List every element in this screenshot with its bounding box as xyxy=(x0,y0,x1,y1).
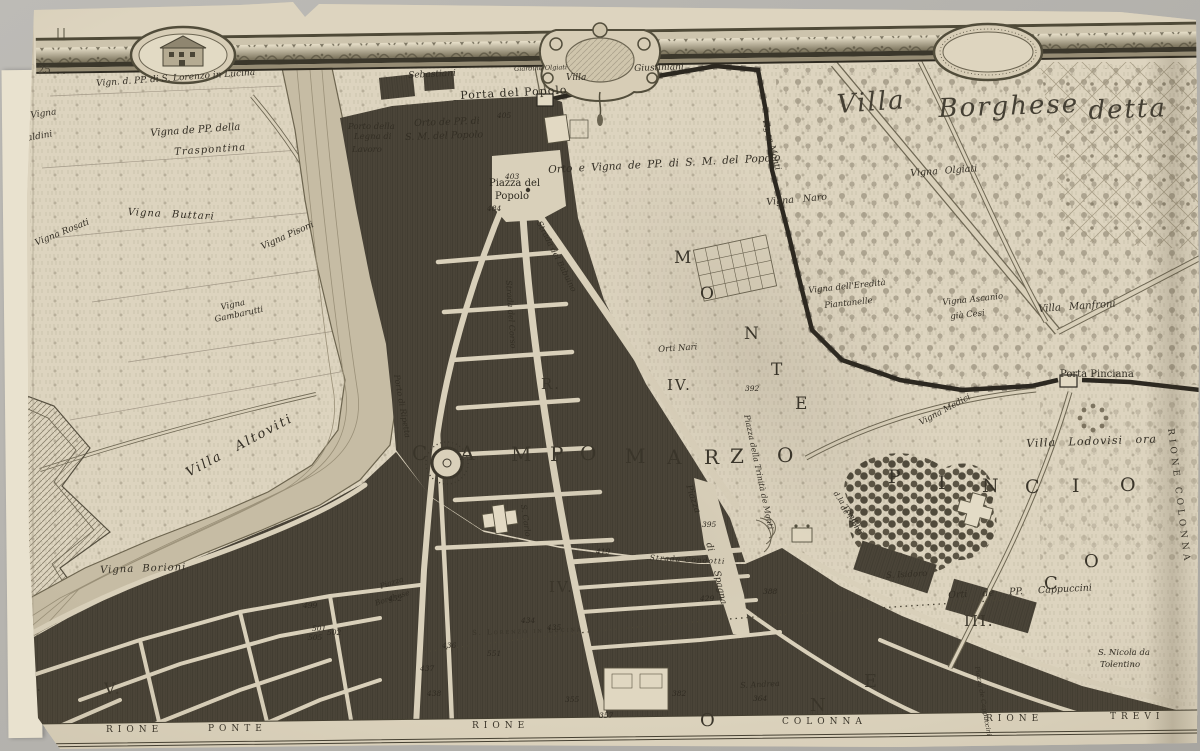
popolo-obelisk xyxy=(526,188,530,192)
porta-del-popolo-gate xyxy=(537,94,553,106)
right-edge-crease xyxy=(1145,55,1200,750)
scan-surface: 25 Vign. d. PP. di S. Lorenzo in LucinaV… xyxy=(0,0,1200,751)
cartouche-crescent xyxy=(934,24,1042,80)
piazza-del-popolo xyxy=(492,150,566,222)
sheet-number: 25 xyxy=(38,66,51,76)
palazzo-with-garden xyxy=(604,668,668,710)
porta-pinciana-gate xyxy=(1060,375,1077,387)
map-engraving xyxy=(0,0,1200,751)
cartouche-house xyxy=(131,27,235,83)
map-sheet: 25 Vign. d. PP. di S. Lorenzo in LucinaV… xyxy=(0,0,1200,751)
